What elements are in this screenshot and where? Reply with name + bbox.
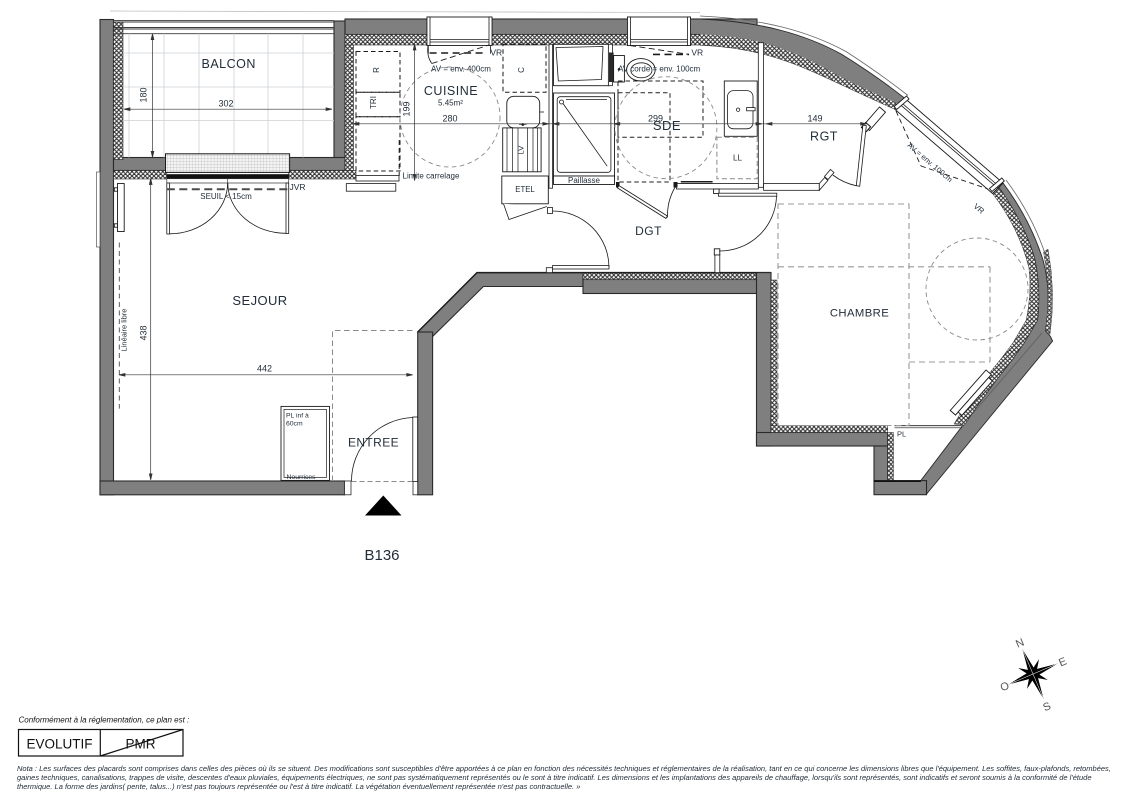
svg-text:thermique. La forme des jardin: thermique. La forme des jardins( pente, … [17,782,580,791]
svg-text:60cm: 60cm [286,421,303,428]
svg-text:Nota : Les surfaces des placar: Nota : Les surfaces des placards sont co… [17,764,1111,773]
svg-text:Conformément à la réglementati: Conformément à la réglementation, ce pla… [19,716,190,725]
svg-text:SEUIL < 15cm: SEUIL < 15cm [200,192,252,201]
svg-text:302: 302 [218,99,233,109]
svg-text:BALCON: BALCON [201,57,255,71]
svg-text:AV corde = env. 100cm: AV corde = env. 100cm [618,65,701,74]
svg-text:199: 199 [402,101,412,116]
svg-text:PL: PL [897,430,906,439]
svg-text:Nourrices: Nourrices [287,474,317,481]
svg-text:5.45m²: 5.45m² [438,99,463,108]
svg-text:RGT: RGT [810,130,838,144]
svg-text:280: 280 [442,114,457,124]
svg-text:R: R [372,67,381,73]
svg-text:B136: B136 [364,547,399,564]
svg-text:CHAMBRE: CHAMBRE [830,308,889,320]
svg-text:442: 442 [257,364,272,374]
svg-text:CUISINE: CUISINE [424,84,478,98]
svg-text:SEJOUR: SEJOUR [232,293,287,308]
svg-text:SDE: SDE [653,118,681,133]
svg-text:438: 438 [139,325,149,340]
svg-text:Paillasse: Paillasse [568,176,601,185]
svg-text:149: 149 [807,113,822,123]
svg-text:EVOLUTIF: EVOLUTIF [26,737,92,752]
svg-text:PMR: PMR [126,737,156,752]
svg-text:LL: LL [733,154,742,163]
svg-text:VR: VR [490,48,502,58]
svg-text:JVR: JVR [290,182,306,192]
svg-text:DGT: DGT [635,224,662,238]
svg-text:180: 180 [139,87,149,102]
svg-text:ENTREE: ENTREE [348,436,399,450]
svg-text:TRI: TRI [369,96,378,109]
svg-text:C: C [517,67,526,73]
svg-text:Limite carrelage: Limite carrelage [403,172,460,181]
svg-text:PL inf à: PL inf à [286,413,309,420]
svg-text:gaines techniques, canalisatio: gaines techniques, canalisations, trappe… [17,773,1092,782]
svg-text:LV: LV [517,146,526,155]
svg-text:VR: VR [691,47,703,57]
svg-text:ETEL: ETEL [515,185,535,194]
svg-text:Linéaire libre: Linéaire libre [120,309,129,352]
svg-text:AV = env. 400cm: AV = env. 400cm [431,65,491,74]
